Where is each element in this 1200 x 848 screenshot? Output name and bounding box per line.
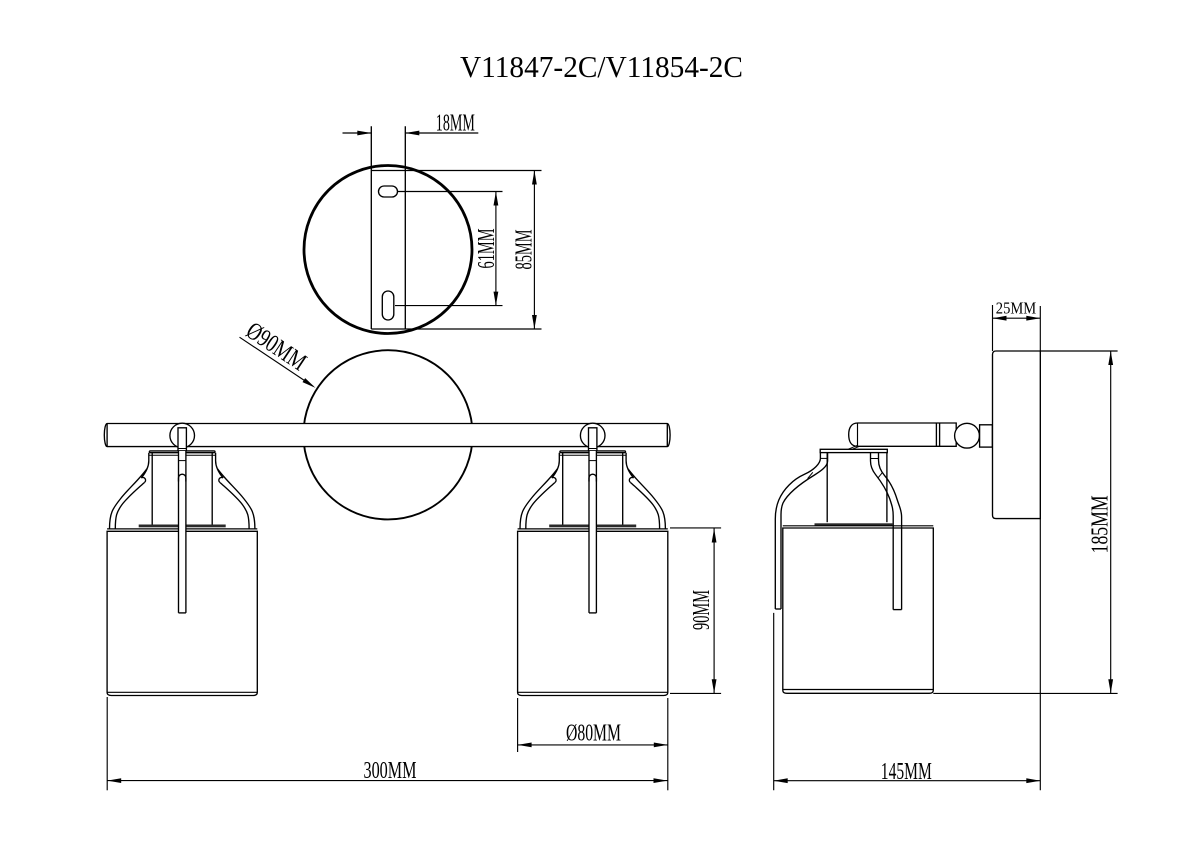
svg-text:145MM: 145MM <box>881 759 932 785</box>
svg-text:Ø90MM: Ø90MM <box>241 317 311 376</box>
svg-text:90MM: 90MM <box>689 590 715 630</box>
svg-text:V11847-2C/V11854-2C: V11847-2C/V11854-2C <box>460 49 743 84</box>
svg-text:Ø80MM: Ø80MM <box>566 721 621 747</box>
svg-text:185MM: 185MM <box>1088 495 1114 553</box>
svg-text:300MM: 300MM <box>364 758 417 784</box>
svg-text:85MM: 85MM <box>512 230 538 270</box>
svg-text:61MM: 61MM <box>474 229 500 269</box>
svg-text:25MM: 25MM <box>996 298 1036 317</box>
svg-text:18MM: 18MM <box>436 110 475 136</box>
